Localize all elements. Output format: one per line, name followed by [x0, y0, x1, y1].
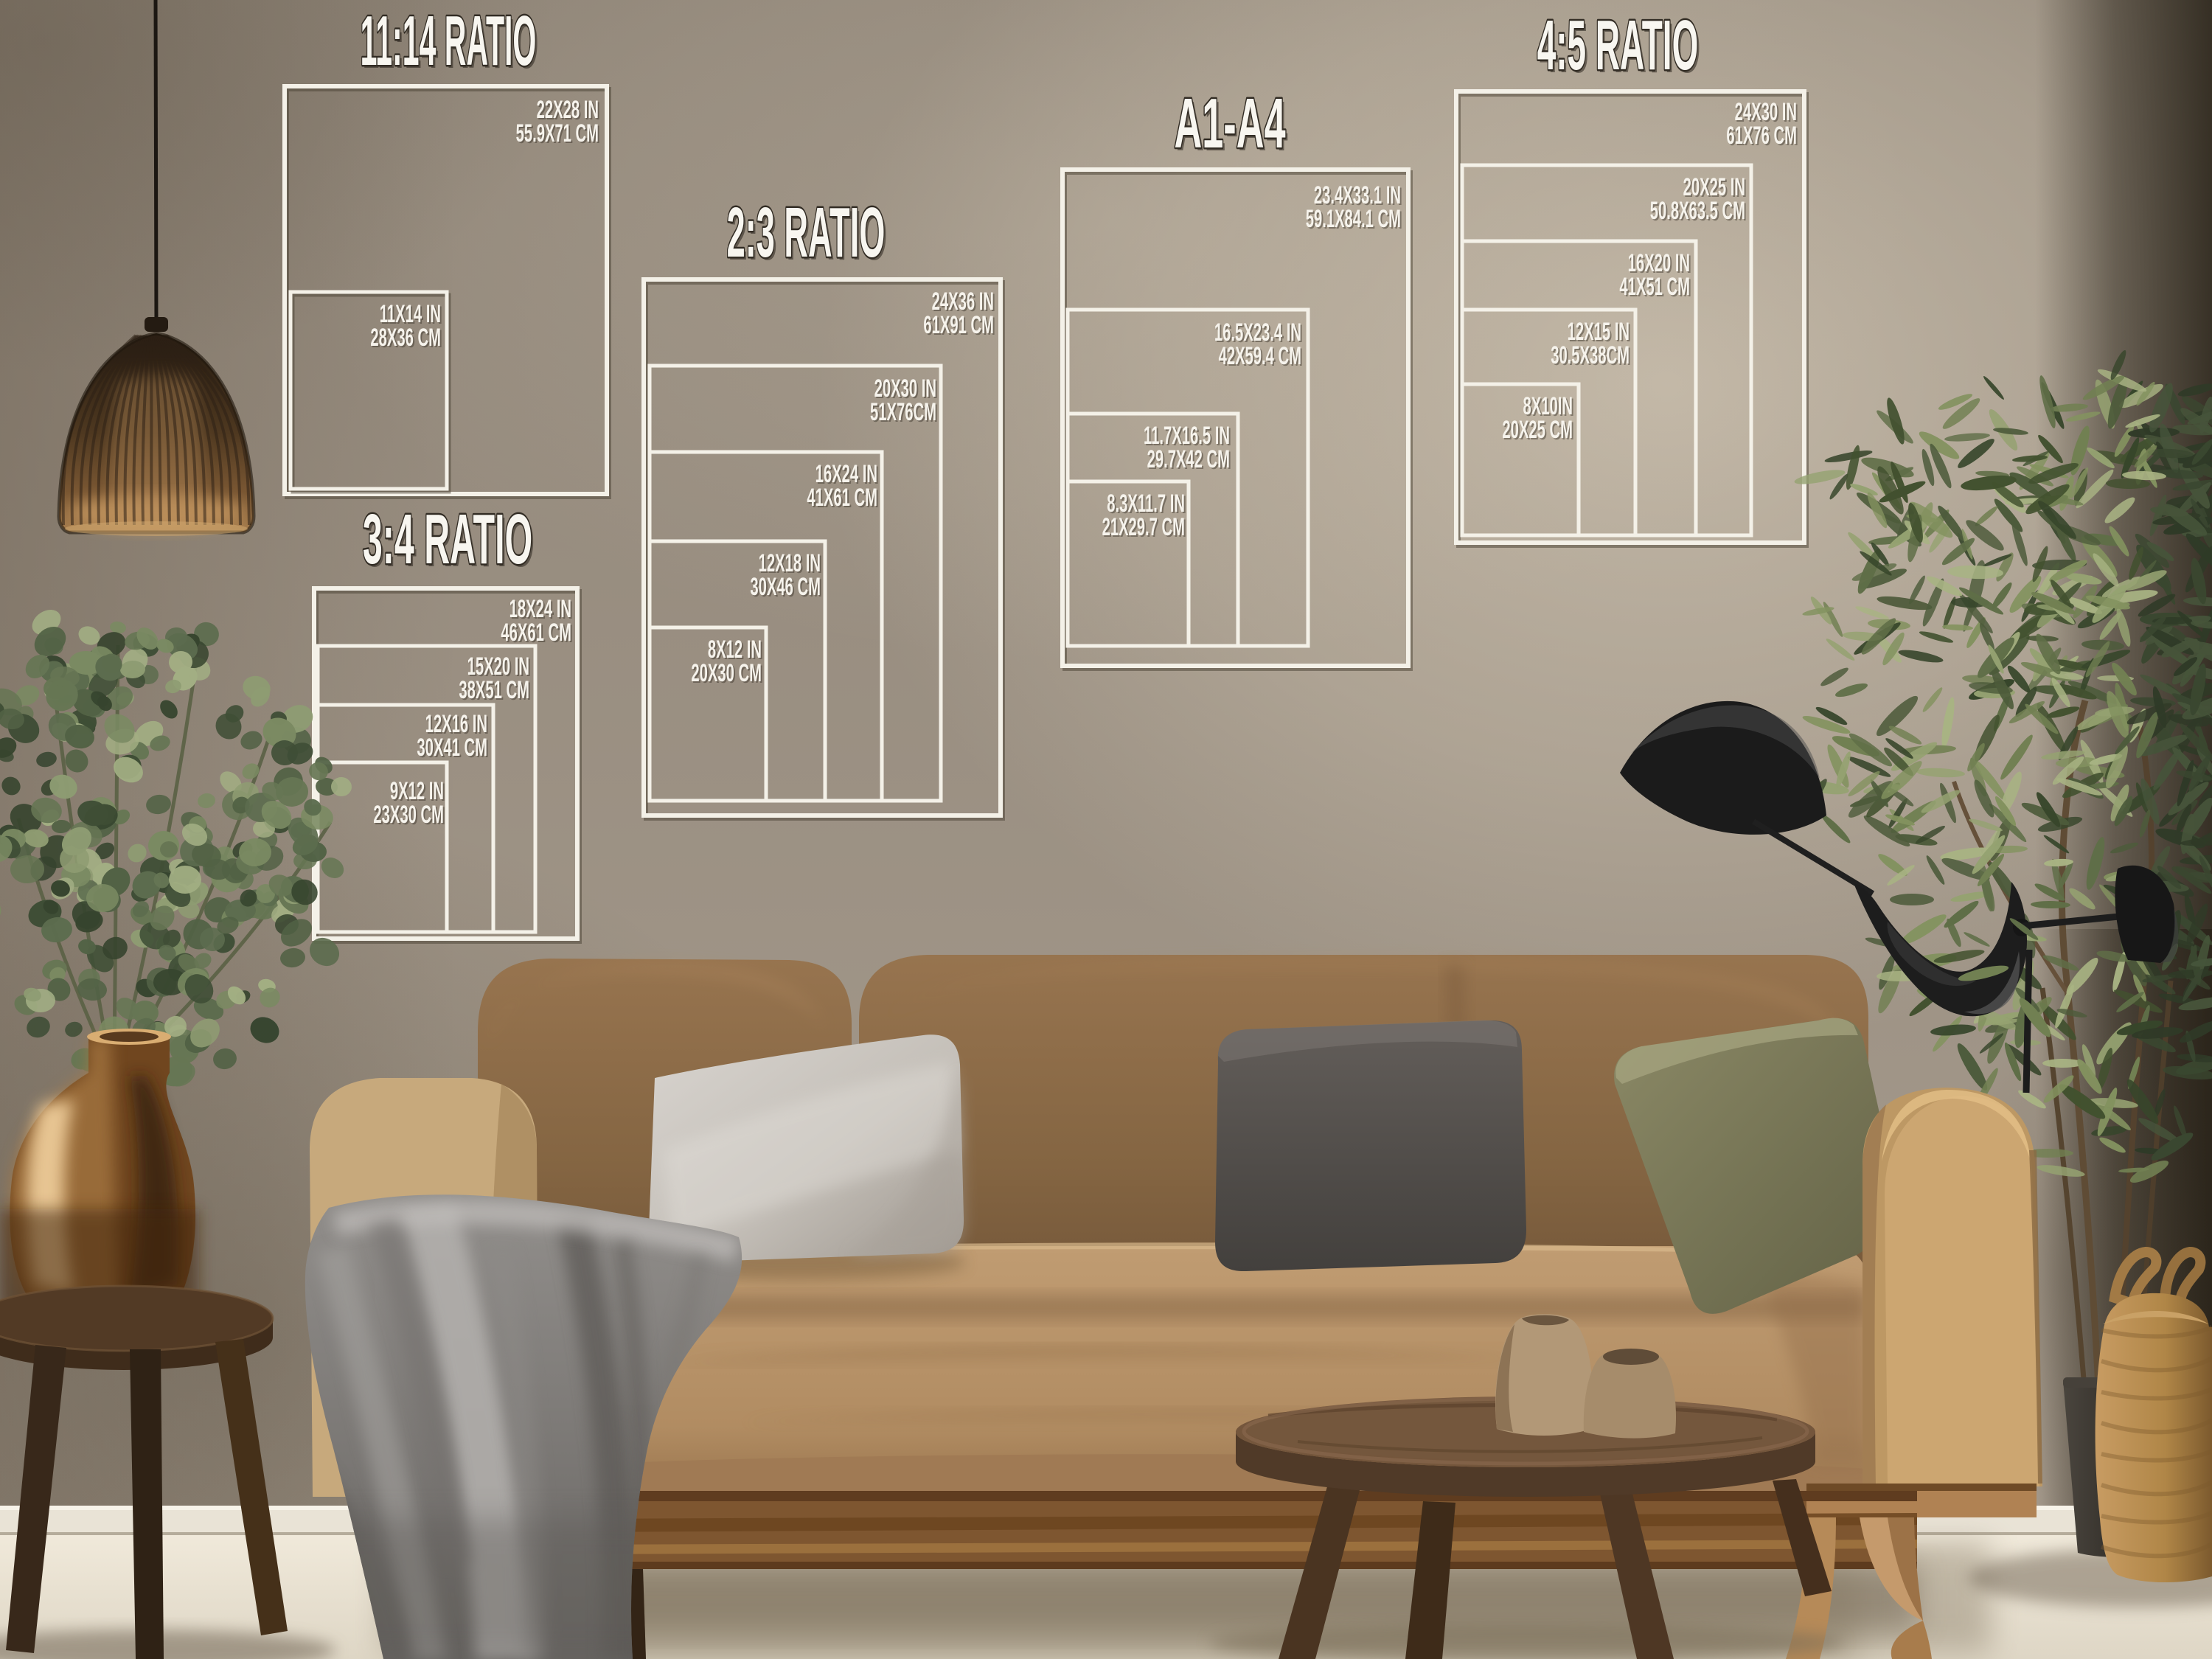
svg-text:59.1X84.1 CM: 59.1X84.1 CM [1306, 205, 1401, 233]
svg-text:61X76 CM: 61X76 CM [1726, 122, 1797, 150]
svg-text:46X61 CM: 46X61 CM [501, 619, 571, 647]
svg-text:20X30 CM: 20X30 CM [691, 659, 762, 687]
svg-text:2:3 RATIO: 2:3 RATIO [727, 192, 886, 272]
svg-text:61X91 CM: 61X91 CM [923, 311, 994, 339]
svg-text:30X41 CM: 30X41 CM [417, 734, 487, 762]
svg-text:38X51 CM: 38X51 CM [459, 676, 529, 704]
svg-text:23X30 CM: 23X30 CM [373, 801, 444, 829]
svg-text:41X51 CM: 41X51 CM [1619, 273, 1690, 301]
svg-text:20X25 CM: 20X25 CM [1502, 416, 1573, 444]
svg-text:41X61 CM: 41X61 CM [807, 484, 877, 512]
svg-text:21X29.7 CM: 21X29.7 CM [1102, 513, 1185, 541]
svg-text:42X59.4 CM: 42X59.4 CM [1219, 342, 1301, 370]
svg-text:55.9X71 CM: 55.9X71 CM [516, 119, 599, 147]
svg-text:29.7X42 CM: 29.7X42 CM [1147, 445, 1230, 473]
svg-text:28X36 CM: 28X36 CM [370, 324, 441, 352]
svg-text:A1-A4: A1-A4 [1174, 84, 1285, 163]
svg-text:50.8X63.5 CM: 50.8X63.5 CM [1650, 197, 1745, 225]
svg-text:11:14 RATIO: 11:14 RATIO [361, 1, 537, 80]
svg-text:4:5 RATIO: 4:5 RATIO [1537, 5, 1699, 84]
svg-text:30.5X38CM: 30.5X38CM [1551, 341, 1630, 369]
svg-text:51X76CM: 51X76CM [870, 398, 936, 426]
svg-text:30X46 CM: 30X46 CM [750, 573, 821, 601]
svg-text:3:4 RATIO: 3:4 RATIO [363, 500, 532, 579]
